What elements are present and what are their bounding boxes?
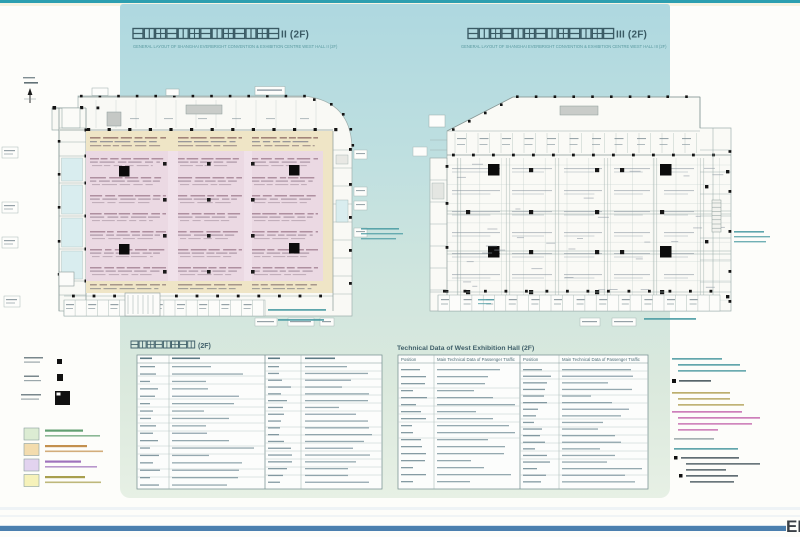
svg-text:Main Technical Data of Passeng: Main Technical Data of Passenger Traffic [562,357,641,362]
svg-text:III (2F): III (2F) [616,30,647,41]
svg-text:Technical Data of West Exhibit: Technical Data of West Exhibition Hall (… [397,345,534,352]
svg-text:II (2F): II (2F) [281,30,309,41]
svg-text:Main Technical Data of Passeng: Main Technical Data of Passenger Traffic [437,357,516,362]
svg-text:GENERAL LAYOUT OF SHANGHAI EVE: GENERAL LAYOUT OF SHANGHAI EVERBRIGHT CO… [461,44,667,49]
svg-text:Position: Position [401,357,417,362]
svg-text:(2F): (2F) [198,343,211,350]
svg-text:GENERAL LAYOUT OF SHANGHAI EVE: GENERAL LAYOUT OF SHANGHAI EVERBRIGHT CO… [133,44,338,49]
svg-text:Position: Position [523,357,539,362]
